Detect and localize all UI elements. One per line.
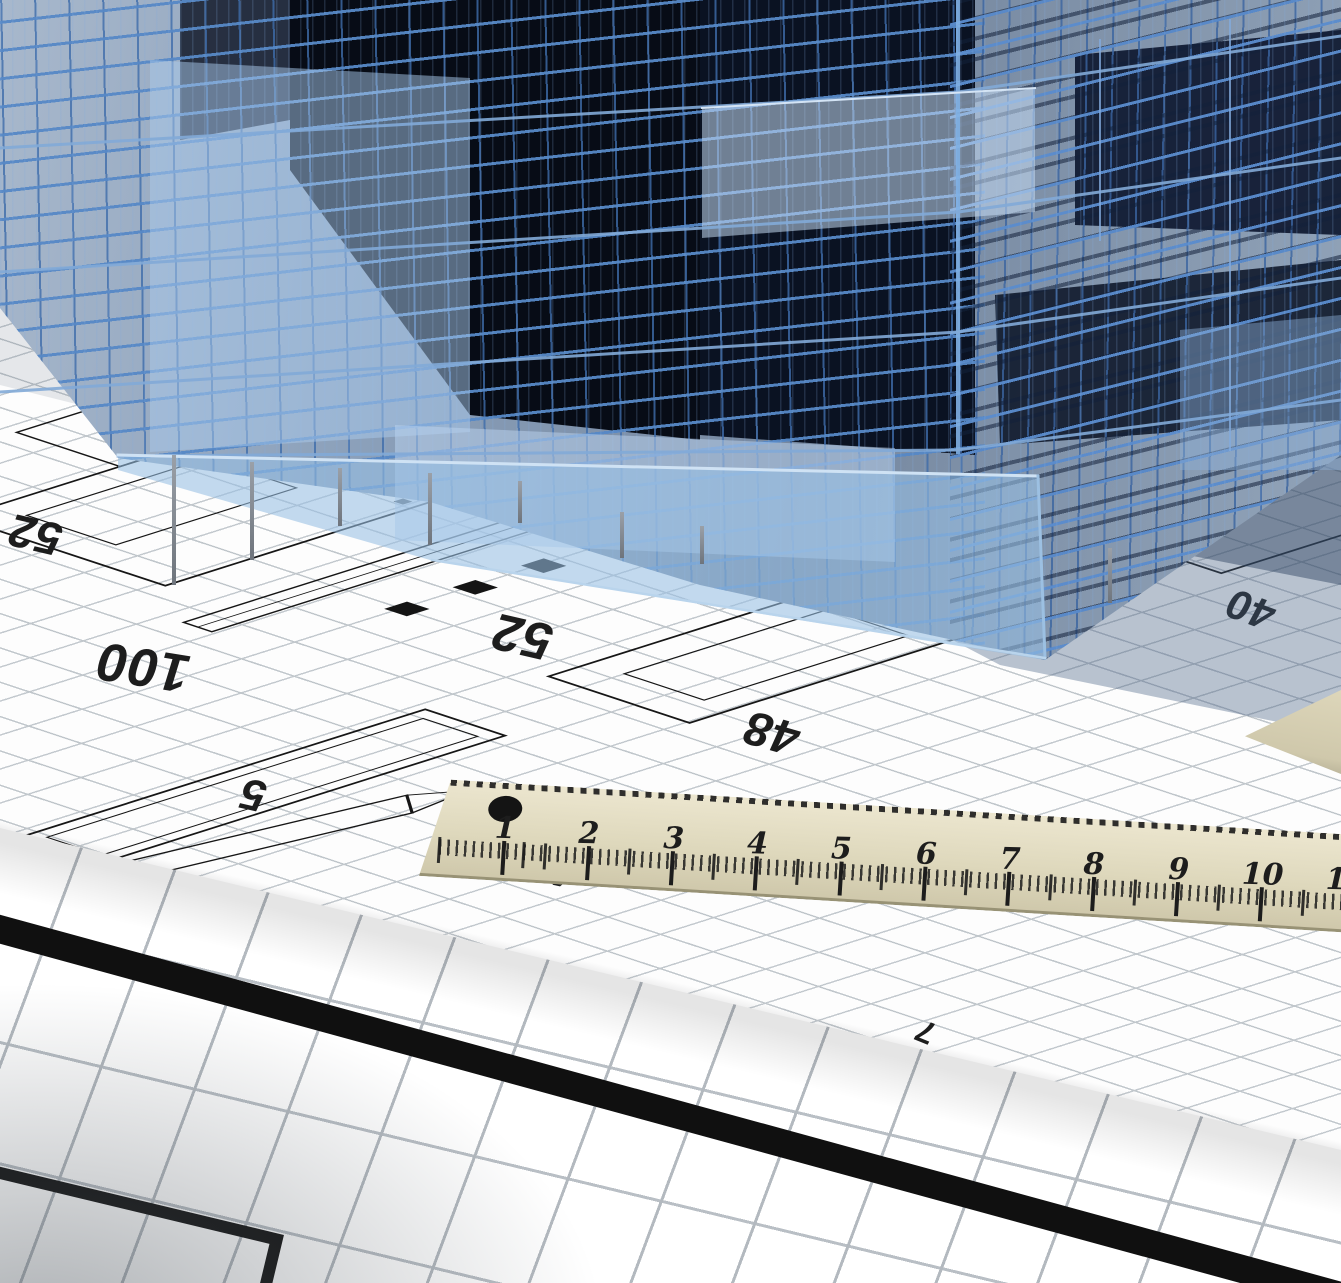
ruler-scale-number: 10 <box>1240 857 1285 893</box>
support-column <box>518 481 522 523</box>
ruler-scale-number: 7 <box>988 841 1033 877</box>
ruler-scale-number: 4 <box>735 826 780 862</box>
structural-edges <box>0 0 1341 720</box>
ruler-scale-number: 2 <box>566 816 611 852</box>
support-column <box>700 526 704 564</box>
ruler-scale-number: 3 <box>651 821 696 857</box>
support-column <box>428 473 432 545</box>
ruler-scale-number: 8 <box>1072 846 1117 882</box>
support-column <box>250 462 254 560</box>
support-column <box>172 455 176 585</box>
corner-shading <box>0 980 610 1283</box>
ruler-scale-number: 6 <box>904 836 949 872</box>
support-column <box>620 512 624 558</box>
architectural-render-scene: 52 100 42 25 52 48 40 40 5 48 7 <box>0 0 1341 1283</box>
ruler-scale-number: 1 <box>483 810 528 846</box>
support-column <box>338 468 342 526</box>
ruler-scale-number: 11 <box>1324 862 1341 898</box>
ruler-scale-number: 9 <box>1156 852 1201 888</box>
ruler-scale-number: 5 <box>819 831 864 867</box>
support-column <box>1108 548 1112 603</box>
